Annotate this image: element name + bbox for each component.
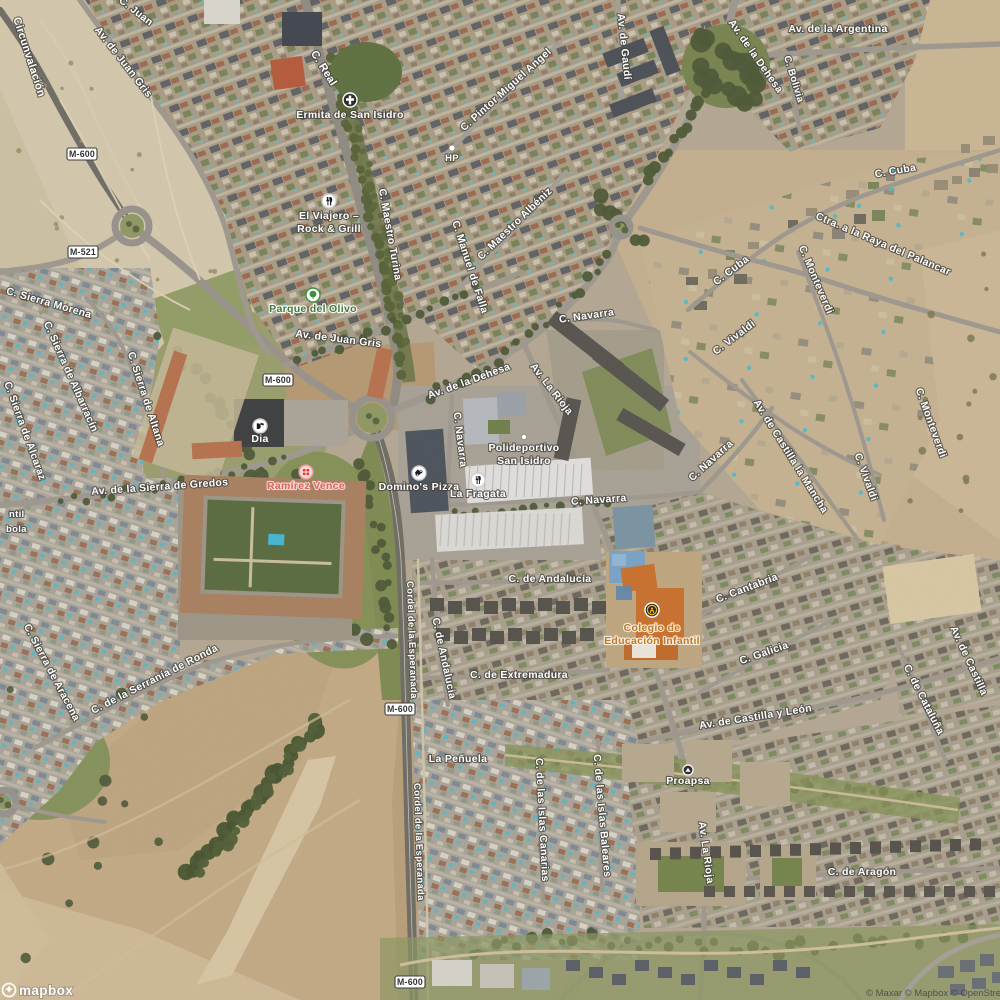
svg-text:ntil: ntil <box>9 509 24 520</box>
svg-text:Ramírez Vence: Ramírez Vence <box>267 480 345 492</box>
svg-text:Proapsa: Proapsa <box>666 775 710 787</box>
svg-text:Rock & Grill: Rock & Grill <box>297 223 361 235</box>
svg-text:M-600: M-600 <box>265 375 291 385</box>
svg-text:M-600: M-600 <box>69 149 95 159</box>
svg-text:M-521: M-521 <box>70 247 96 257</box>
svg-text:La Fragata: La Fragata <box>450 488 506 500</box>
svg-text:Colegio de: Colegio de <box>624 622 681 634</box>
svg-text:HP: HP <box>445 153 459 164</box>
svg-text:© Maxar © Mapbox © OpenStreetM: © Maxar © Mapbox © OpenStreetMap <box>866 988 1000 999</box>
svg-text:Parque del Olivo: Parque del Olivo <box>269 303 357 315</box>
svg-text:La Peñuela: La Peñuela <box>429 753 487 765</box>
svg-text:Dia: Dia <box>251 433 268 445</box>
svg-text:Polideportivo: Polideportivo <box>489 442 560 454</box>
svg-text:M-600: M-600 <box>387 704 413 714</box>
svg-text:C. de Andalucía: C. de Andalucía <box>509 573 592 585</box>
svg-text:Domino's Pizza: Domino's Pizza <box>379 481 460 493</box>
svg-text:M-600: M-600 <box>397 977 423 987</box>
svg-text:C. de Extremadura: C. de Extremadura <box>470 669 568 681</box>
svg-text:Educación Infantil: Educación Infantil <box>604 635 700 647</box>
svg-text:C. de Aragón: C. de Aragón <box>828 866 897 878</box>
svg-text:bola: bola <box>6 524 27 535</box>
svg-text:Ermita de San Isidro: Ermita de San Isidro <box>296 109 404 121</box>
svg-text:El Viajero –: El Viajero – <box>299 210 359 222</box>
svg-text:Av. de la Argentina: Av. de la Argentina <box>788 23 887 35</box>
svg-text:San Isidro: San Isidro <box>497 455 551 467</box>
svg-text:mapbox: mapbox <box>19 983 73 998</box>
